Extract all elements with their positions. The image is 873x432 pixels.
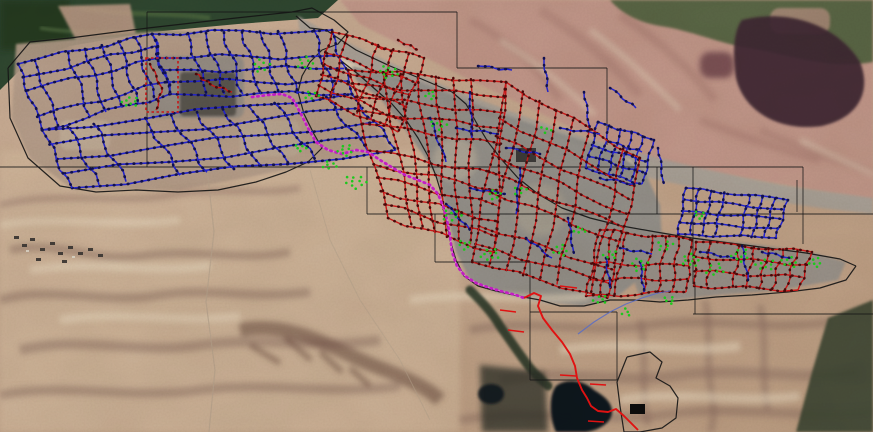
green-node-dot bbox=[305, 56, 308, 59]
green-node-dot bbox=[577, 231, 580, 234]
green-node-dot bbox=[689, 263, 692, 266]
green-node-dot bbox=[813, 262, 816, 265]
green-node-dot bbox=[430, 98, 433, 101]
green-node-dot bbox=[310, 97, 313, 100]
green-node-dot bbox=[396, 73, 399, 76]
green-node-dot bbox=[459, 240, 462, 243]
green-node-dot bbox=[365, 181, 368, 184]
green-node-dot bbox=[722, 270, 725, 273]
green-node-dot bbox=[360, 184, 363, 187]
green-node-dot bbox=[262, 62, 265, 65]
green-node-dot bbox=[394, 68, 397, 71]
green-node-dot bbox=[744, 249, 747, 252]
green-node-dot bbox=[134, 104, 137, 107]
green-node-dot bbox=[701, 215, 704, 218]
green-node-dot bbox=[665, 300, 668, 303]
green-node-dot bbox=[604, 295, 607, 298]
green-node-dot bbox=[307, 59, 310, 62]
green-node-dot bbox=[794, 261, 797, 264]
green-node-dot bbox=[705, 271, 708, 274]
green-node-dot bbox=[494, 248, 497, 251]
satellite-map bbox=[0, 0, 873, 432]
green-node-dot bbox=[438, 129, 441, 132]
green-node-dot bbox=[730, 255, 733, 258]
green-node-dot bbox=[125, 104, 128, 107]
green-node-dot bbox=[736, 258, 739, 261]
green-node-dot bbox=[744, 252, 747, 255]
green-node-dot bbox=[709, 268, 712, 271]
green-node-dot bbox=[305, 147, 308, 150]
green-node-dot bbox=[611, 253, 614, 256]
green-node-dot bbox=[710, 264, 713, 267]
green-node-dot bbox=[258, 66, 261, 69]
green-node-dot bbox=[664, 296, 667, 299]
green-node-dot bbox=[299, 58, 302, 61]
green-node-dot bbox=[642, 268, 645, 271]
green-node-dot bbox=[134, 100, 137, 103]
green-node-dot bbox=[812, 258, 815, 261]
green-node-dot bbox=[125, 99, 128, 102]
green-node-dot bbox=[496, 196, 499, 199]
green-node-dot bbox=[489, 252, 492, 255]
green-node-dot bbox=[297, 65, 300, 68]
green-node-dot bbox=[135, 97, 138, 100]
green-node-dot bbox=[672, 243, 675, 246]
green-node-dot bbox=[592, 299, 595, 302]
green-node-dot bbox=[335, 165, 338, 168]
green-node-dot bbox=[786, 258, 789, 261]
green-node-dot bbox=[793, 265, 796, 268]
green-node-dot bbox=[697, 259, 700, 262]
green-node-dot bbox=[628, 314, 631, 317]
green-node-dot bbox=[520, 192, 523, 195]
green-node-dot bbox=[431, 91, 434, 94]
green-node-dot bbox=[666, 248, 669, 251]
green-node-dot bbox=[695, 214, 698, 217]
green-node-dot bbox=[129, 102, 132, 105]
green-node-dot bbox=[391, 71, 394, 74]
green-node-dot bbox=[443, 218, 446, 221]
green-node-dot bbox=[783, 263, 786, 266]
green-node-dot bbox=[577, 226, 580, 229]
green-node-dot bbox=[544, 132, 547, 135]
green-node-dot bbox=[301, 62, 304, 65]
green-node-dot bbox=[565, 250, 568, 253]
green-node-dot bbox=[354, 187, 357, 190]
green-node-dot bbox=[351, 180, 354, 183]
green-node-dot bbox=[445, 214, 448, 217]
green-node-dot bbox=[391, 74, 394, 77]
green-node-dot bbox=[608, 250, 611, 253]
green-node-dot bbox=[817, 257, 820, 260]
green-node-dot bbox=[459, 244, 462, 247]
green-node-dot bbox=[626, 311, 629, 314]
green-node-dot bbox=[308, 94, 311, 97]
green-node-dot bbox=[525, 188, 528, 191]
green-node-dot bbox=[816, 266, 819, 269]
green-node-dot bbox=[552, 251, 555, 254]
green-node-dot bbox=[614, 250, 617, 253]
green-node-dot bbox=[754, 263, 757, 266]
green-node-dot bbox=[621, 313, 624, 316]
green-node-dot bbox=[581, 228, 584, 231]
green-node-dot bbox=[647, 261, 650, 264]
green-node-dot bbox=[546, 127, 549, 130]
green-node-dot bbox=[307, 91, 310, 94]
red-transmission-tick bbox=[560, 375, 576, 376]
green-node-dot bbox=[635, 258, 638, 261]
green-node-dot bbox=[430, 120, 433, 123]
green-node-dot bbox=[719, 266, 722, 269]
green-node-dot bbox=[670, 302, 673, 305]
green-node-dot bbox=[352, 176, 355, 179]
green-node-dot bbox=[584, 230, 587, 233]
green-node-dot bbox=[746, 257, 749, 260]
green-node-dot bbox=[491, 256, 494, 259]
green-node-dot bbox=[468, 241, 471, 244]
green-node-dot bbox=[540, 126, 543, 129]
green-node-dot bbox=[128, 96, 131, 99]
green-node-dot bbox=[348, 144, 351, 147]
green-node-dot bbox=[789, 263, 792, 266]
green-node-dot bbox=[345, 155, 348, 158]
green-node-dot bbox=[424, 95, 427, 98]
green-node-dot bbox=[573, 230, 576, 233]
green-node-dot bbox=[740, 255, 743, 258]
green-node-dot bbox=[258, 58, 261, 61]
green-node-dot bbox=[497, 256, 500, 259]
green-node-dot bbox=[712, 273, 715, 276]
green-node-dot bbox=[464, 242, 467, 245]
green-node-dot bbox=[635, 270, 638, 273]
green-node-dot bbox=[350, 151, 353, 154]
green-node-dot bbox=[304, 66, 307, 69]
green-node-dot bbox=[304, 97, 307, 100]
green-node-dot bbox=[808, 262, 811, 265]
green-node-dot bbox=[631, 262, 634, 265]
green-node-dot bbox=[441, 125, 444, 128]
green-node-dot bbox=[345, 182, 348, 185]
green-node-dot bbox=[384, 77, 387, 80]
green-node-dot bbox=[385, 70, 388, 73]
green-node-dot bbox=[770, 268, 773, 271]
green-node-dot bbox=[666, 244, 669, 247]
green-node-dot bbox=[342, 145, 345, 148]
green-node-dot bbox=[613, 256, 616, 259]
green-node-dot bbox=[682, 262, 685, 265]
green-node-dot bbox=[299, 150, 302, 153]
green-node-dot bbox=[606, 256, 609, 259]
green-node-dot bbox=[327, 167, 330, 170]
green-node-dot bbox=[295, 144, 298, 147]
green-node-dot bbox=[683, 255, 686, 258]
green-node-dot bbox=[351, 184, 354, 187]
green-node-dot bbox=[322, 166, 325, 169]
green-node-dot bbox=[770, 263, 773, 266]
green-node-dot bbox=[480, 255, 483, 258]
green-node-dot bbox=[659, 248, 662, 251]
green-node-dot bbox=[624, 307, 627, 310]
green-node-dot bbox=[341, 148, 344, 151]
green-node-dot bbox=[550, 129, 553, 132]
green-node-dot bbox=[562, 254, 565, 257]
green-node-dot bbox=[358, 180, 361, 183]
green-node-dot bbox=[760, 262, 763, 265]
green-node-dot bbox=[601, 298, 604, 301]
green-node-dot bbox=[431, 125, 434, 128]
green-node-dot bbox=[671, 299, 674, 302]
green-node-dot bbox=[692, 256, 695, 259]
green-node-dot bbox=[450, 212, 453, 215]
green-node-dot bbox=[735, 253, 738, 256]
green-node-dot bbox=[695, 211, 698, 214]
green-node-dot bbox=[657, 241, 660, 244]
green-node-dot bbox=[326, 163, 329, 166]
green-node-dot bbox=[790, 256, 793, 259]
green-node-dot bbox=[360, 176, 363, 179]
green-node-dot bbox=[690, 253, 693, 256]
green-node-dot bbox=[640, 260, 643, 263]
green-node-dot bbox=[495, 252, 498, 255]
green-node-dot bbox=[256, 70, 259, 73]
green-node-dot bbox=[120, 101, 123, 104]
map-canvas bbox=[0, 0, 873, 432]
green-node-dot bbox=[445, 210, 448, 213]
green-node-dot bbox=[491, 198, 494, 201]
green-node-dot bbox=[635, 266, 638, 269]
green-node-dot bbox=[772, 260, 775, 263]
green-node-dot bbox=[440, 120, 443, 123]
green-node-dot bbox=[296, 147, 299, 150]
green-node-dot bbox=[684, 259, 687, 262]
green-node-dot bbox=[764, 259, 767, 262]
green-node-dot bbox=[382, 65, 385, 68]
green-node-dot bbox=[467, 246, 470, 249]
green-node-dot bbox=[483, 253, 486, 256]
green-node-dot bbox=[269, 63, 272, 66]
green-node-dot bbox=[666, 240, 669, 243]
green-node-dot bbox=[446, 123, 449, 126]
green-node-dot bbox=[780, 259, 783, 262]
green-node-dot bbox=[561, 248, 564, 251]
green-node-dot bbox=[494, 192, 497, 195]
green-node-dot bbox=[332, 162, 335, 165]
green-node-dot bbox=[486, 258, 489, 261]
green-node-dot bbox=[309, 67, 312, 70]
green-node-dot bbox=[489, 193, 492, 196]
green-node-dot bbox=[326, 160, 329, 163]
green-node-dot bbox=[702, 212, 705, 215]
green-node-dot bbox=[764, 266, 767, 269]
green-node-dot bbox=[346, 176, 349, 179]
green-node-dot bbox=[604, 301, 607, 304]
green-node-dot bbox=[336, 150, 339, 153]
green-node-dot bbox=[698, 217, 701, 220]
green-node-dot bbox=[263, 69, 266, 72]
green-node-dot bbox=[520, 187, 523, 190]
green-node-dot bbox=[558, 252, 561, 255]
green-node-dot bbox=[598, 295, 601, 298]
green-node-dot bbox=[716, 270, 719, 273]
green-node-dot bbox=[455, 216, 458, 219]
green-node-dot bbox=[671, 296, 674, 299]
green-node-dot bbox=[428, 92, 431, 95]
green-node-dot bbox=[514, 193, 517, 196]
green-node-dot bbox=[436, 122, 439, 125]
green-node-dot bbox=[740, 260, 743, 263]
green-node-dot bbox=[561, 244, 564, 247]
green-node-dot bbox=[556, 246, 559, 249]
green-node-dot bbox=[486, 249, 489, 252]
red-transmission-tick bbox=[588, 421, 604, 422]
green-node-dot bbox=[718, 263, 721, 266]
green-node-dot bbox=[602, 254, 605, 257]
green-node-dot bbox=[383, 73, 386, 76]
green-node-dot bbox=[432, 95, 435, 98]
green-node-dot bbox=[737, 249, 740, 252]
green-node-dot bbox=[642, 264, 645, 267]
green-node-dot bbox=[819, 262, 822, 265]
facility-black-square bbox=[630, 404, 645, 414]
green-node-dot bbox=[463, 248, 466, 251]
green-node-dot bbox=[514, 187, 517, 190]
red-transmission-tick bbox=[590, 384, 606, 385]
green-node-dot bbox=[499, 192, 502, 195]
green-node-dot bbox=[318, 94, 321, 97]
green-node-dot bbox=[348, 148, 351, 151]
green-node-dot bbox=[460, 214, 463, 217]
green-node-dot bbox=[695, 264, 698, 267]
green-node-dot bbox=[387, 67, 390, 70]
green-node-dot bbox=[451, 219, 454, 222]
green-node-dot bbox=[455, 210, 458, 213]
green-node-dot bbox=[660, 245, 663, 248]
green-node-dot bbox=[301, 145, 304, 148]
green-node-dot bbox=[379, 70, 382, 73]
green-node-dot bbox=[342, 152, 345, 155]
green-node-dot bbox=[254, 63, 257, 66]
green-node-dot bbox=[691, 260, 694, 263]
green-node-dot bbox=[759, 267, 762, 270]
green-node-dot bbox=[312, 62, 315, 65]
green-node-dot bbox=[314, 92, 317, 95]
green-node-dot bbox=[491, 189, 494, 192]
green-node-dot bbox=[597, 301, 600, 304]
